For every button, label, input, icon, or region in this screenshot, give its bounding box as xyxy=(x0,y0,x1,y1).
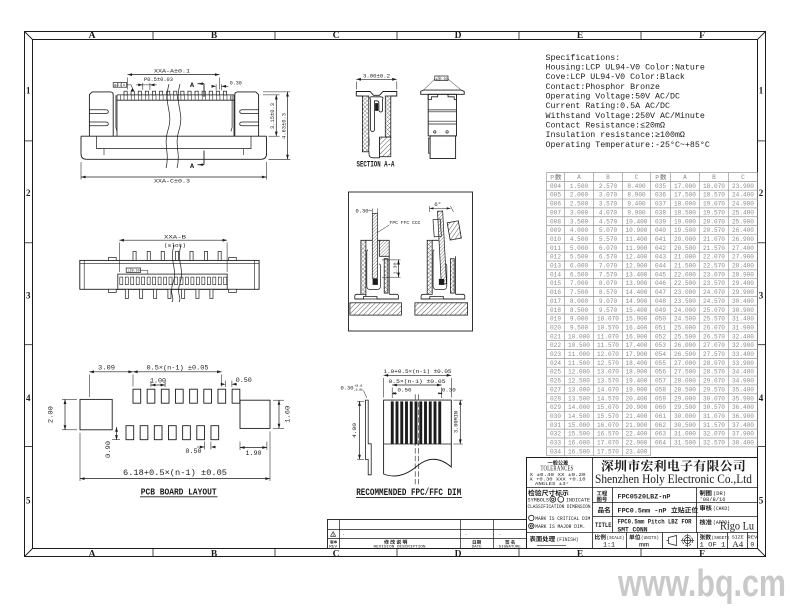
svg-text:(CHKD): (CHKD) xyxy=(713,506,730,512)
svg-text:053: 053 xyxy=(655,342,666,349)
svg-text:12.900: 12.900 xyxy=(626,263,648,270)
svg-text:(FINISH): (FINISH) xyxy=(557,537,579,543)
svg-text:15.070: 15.070 xyxy=(597,404,619,411)
svg-text:(slot): (slot) xyxy=(164,242,186,249)
svg-text:Current Rating:0.5A AC/DC: Current Rating:0.5A AC/DC xyxy=(546,101,670,111)
svg-text:28.570: 28.570 xyxy=(703,369,725,376)
svg-text:REVISION DESCRIPTION: REVISION DESCRIPTION xyxy=(374,545,426,549)
svg-text:021: 021 xyxy=(550,333,561,340)
svg-text:013: 013 xyxy=(550,263,561,270)
svg-text:22.900: 22.900 xyxy=(626,440,648,447)
svg-text:26.070: 26.070 xyxy=(703,324,725,331)
svg-text:0.50: 0.50 xyxy=(132,270,140,274)
svg-text:7.500: 7.500 xyxy=(570,289,589,296)
svg-text:Housing:LCP UL94-V0 Color:Natu: Housing:LCP UL94-V0 Color:Nature xyxy=(546,63,705,73)
svg-text:14.400: 14.400 xyxy=(626,289,648,296)
svg-text:20.500: 20.500 xyxy=(674,245,696,252)
svg-text:006: 006 xyxy=(550,201,561,208)
svg-text:1.30: 1.30 xyxy=(392,262,398,274)
svg-text:C: C xyxy=(635,174,639,181)
svg-text:28.900: 28.900 xyxy=(732,271,754,278)
svg-text:005: 005 xyxy=(550,192,561,199)
svg-text:20.570: 20.570 xyxy=(703,227,725,234)
svg-text:12.500: 12.500 xyxy=(568,378,590,385)
svg-text:DATE: DATE xyxy=(472,545,482,549)
svg-text:16.000: 16.000 xyxy=(568,440,590,447)
svg-text:3: 3 xyxy=(759,291,764,301)
svg-text:6.500: 6.500 xyxy=(570,271,589,278)
svg-text:36.400: 36.400 xyxy=(732,404,754,411)
svg-text:1.0+0.5×(n-1) ±0.05: 1.0+0.5×(n-1) ±0.05 xyxy=(384,368,453,375)
svg-text:E: E xyxy=(577,549,583,559)
svg-text:045: 045 xyxy=(655,271,666,278)
svg-text:9.000: 9.000 xyxy=(570,316,589,323)
svg-text:16.070: 16.070 xyxy=(597,422,619,429)
svg-text:21.900: 21.900 xyxy=(626,422,648,429)
svg-text:039: 039 xyxy=(655,218,666,225)
svg-text:056: 056 xyxy=(655,369,666,376)
svg-text:A: A xyxy=(89,31,96,41)
svg-text:32.070: 32.070 xyxy=(703,431,725,438)
svg-text:A: A xyxy=(89,549,96,559)
svg-text:14.070: 14.070 xyxy=(597,386,619,393)
svg-text:030: 030 xyxy=(550,413,561,420)
svg-text:XXA-A±0.1: XXA-A±0.1 xyxy=(154,67,191,74)
svg-text:4.63±0.3: 4.63±0.3 xyxy=(281,113,287,139)
svg-text:3: 3 xyxy=(26,291,31,301)
svg-text:062: 062 xyxy=(655,422,666,429)
svg-text:19.570: 19.570 xyxy=(703,209,725,216)
svg-text:24.570: 24.570 xyxy=(703,298,725,305)
svg-text:12.400: 12.400 xyxy=(626,254,648,261)
svg-text:26.900: 26.900 xyxy=(732,236,754,243)
svg-text:29.000: 29.000 xyxy=(674,395,696,402)
svg-text:30.400: 30.400 xyxy=(732,298,754,305)
svg-text:10.500: 10.500 xyxy=(568,342,590,349)
svg-text:7.570: 7.570 xyxy=(599,271,618,278)
svg-text:17.070: 17.070 xyxy=(597,440,619,447)
svg-text:10.000: 10.000 xyxy=(568,333,590,340)
svg-text:032: 032 xyxy=(550,431,561,438)
svg-text:B: B xyxy=(712,174,716,181)
svg-text:30.500: 30.500 xyxy=(674,422,696,429)
svg-text:25.500: 25.500 xyxy=(674,333,696,340)
svg-text:15.400: 15.400 xyxy=(626,307,648,314)
svg-text:4: 4 xyxy=(26,393,31,403)
svg-text:29.500: 29.500 xyxy=(674,404,696,411)
svg-text:5.500: 5.500 xyxy=(570,254,589,261)
svg-text:31.500: 31.500 xyxy=(674,440,696,447)
svg-text:FPC0.5mm Pitch LBZ FOR: FPC0.5mm Pitch LBZ FOR xyxy=(618,519,692,526)
svg-text:30.570: 30.570 xyxy=(703,404,725,411)
svg-text:25.070: 25.070 xyxy=(703,307,725,314)
svg-text:13.570: 13.570 xyxy=(597,378,619,385)
svg-text:26.570: 26.570 xyxy=(703,333,725,340)
svg-text:-: - xyxy=(342,533,345,538)
svg-text:22.500: 22.500 xyxy=(674,280,696,287)
svg-text:3.000: 3.000 xyxy=(570,209,589,216)
svg-text:2.500: 2.500 xyxy=(570,201,589,208)
svg-text:(UNITS): (UNITS) xyxy=(641,535,659,541)
svg-text:7.070: 7.070 xyxy=(599,263,618,270)
svg-text:31.900: 31.900 xyxy=(732,324,754,331)
svg-text:Contact Resistance:≤20mΩ: Contact Resistance:≤20mΩ xyxy=(546,121,666,131)
svg-text:19.900: 19.900 xyxy=(626,386,648,393)
svg-text:36.900: 36.900 xyxy=(732,413,754,420)
svg-text:8.900: 8.900 xyxy=(627,192,646,199)
svg-text:2: 2 xyxy=(759,188,764,198)
svg-text:mm: mm xyxy=(639,542,649,549)
svg-text:A: A xyxy=(577,174,581,181)
svg-text:11.500: 11.500 xyxy=(568,360,590,367)
svg-text:18.000: 18.000 xyxy=(674,201,696,208)
svg-text:038: 038 xyxy=(655,209,666,216)
svg-text:018: 018 xyxy=(550,307,561,314)
svg-text:11.070: 11.070 xyxy=(597,333,619,340)
svg-text:9.570: 9.570 xyxy=(599,307,618,314)
svg-text:20.400: 20.400 xyxy=(626,395,648,402)
svg-text:031: 031 xyxy=(550,422,561,429)
svg-text:31.000: 31.000 xyxy=(674,431,696,438)
svg-text:011: 011 xyxy=(550,245,561,252)
svg-text:Insulation resistance:≥100mΩ: Insulation resistance:≥100mΩ xyxy=(546,130,685,140)
svg-text:24.000: 24.000 xyxy=(674,307,696,314)
svg-text:11.570: 11.570 xyxy=(597,342,619,349)
svg-text:015: 015 xyxy=(550,280,561,287)
svg-text:Cove:LCP UL94-V0 Color:Black: Cove:LCP UL94-V0 Color:Black xyxy=(546,72,685,82)
svg-text:RECOMMENDED FPC/FFC DIM: RECOMMENDED FPC/FFC DIM xyxy=(356,487,461,499)
svg-text:041: 041 xyxy=(655,236,666,243)
svg-text:23.570: 23.570 xyxy=(703,280,725,287)
svg-text:16.570: 16.570 xyxy=(597,431,619,438)
svg-text:www.bq.cm: www.bq.cm xyxy=(617,563,786,605)
svg-text:008: 008 xyxy=(550,218,561,225)
svg-text:14.900: 14.900 xyxy=(626,298,648,305)
svg-text:8.400: 8.400 xyxy=(627,183,646,190)
svg-text:18.400: 18.400 xyxy=(626,360,648,367)
svg-text:22.400: 22.400 xyxy=(626,431,648,438)
svg-text:33.400: 33.400 xyxy=(732,351,754,358)
svg-text:0.5×(n-1) ±0.05: 0.5×(n-1) ±0.05 xyxy=(389,378,447,385)
svg-text:FPC FFC CCC: FPC FFC CCC xyxy=(390,220,421,226)
svg-text:14.570: 14.570 xyxy=(597,395,619,402)
svg-text:29.570: 29.570 xyxy=(703,386,725,393)
svg-text:31.070: 31.070 xyxy=(703,413,725,420)
svg-text:A: A xyxy=(123,83,125,87)
svg-text:20.000: 20.000 xyxy=(674,236,696,243)
svg-text:017: 017 xyxy=(550,298,561,305)
svg-text:064: 064 xyxy=(655,440,666,447)
svg-text:B: B xyxy=(606,174,610,181)
svg-text:Contact:Phosphor Bronze: Contact:Phosphor Bronze xyxy=(546,82,661,92)
svg-text:060: 060 xyxy=(655,404,666,411)
svg-text:31.400: 31.400 xyxy=(732,316,754,323)
svg-text:061: 061 xyxy=(655,413,666,420)
svg-text:(SCALE): (SCALE) xyxy=(607,535,625,541)
svg-text:0.50: 0.50 xyxy=(186,448,202,455)
svg-text:1.90: 1.90 xyxy=(246,450,262,457)
svg-text:11.000: 11.000 xyxy=(568,351,590,358)
svg-text:30.000: 30.000 xyxy=(674,413,696,420)
svg-text:34.400: 34.400 xyxy=(732,369,754,376)
svg-text:30.070: 30.070 xyxy=(703,395,725,402)
svg-text:13.500: 13.500 xyxy=(568,395,590,402)
svg-text:SYMBOLS: SYMBOLS xyxy=(528,497,550,503)
svg-text:29.400: 29.400 xyxy=(732,280,754,287)
svg-text:35.900: 35.900 xyxy=(732,395,754,402)
svg-text:6.000: 6.000 xyxy=(570,263,589,270)
svg-text:25.570: 25.570 xyxy=(703,316,725,323)
svg-text:Operating Temperature:-25°C~+8: Operating Temperature:-25°C~+85°C xyxy=(546,140,710,150)
svg-text:18.070: 18.070 xyxy=(703,183,725,190)
svg-text:18.570: 18.570 xyxy=(703,192,725,199)
svg-text:4.000: 4.000 xyxy=(570,227,589,234)
svg-text:19.000: 19.000 xyxy=(674,218,696,225)
svg-text:1: 1 xyxy=(759,86,764,96)
svg-text:007: 007 xyxy=(550,209,561,216)
svg-text:9.070: 9.070 xyxy=(599,298,618,305)
svg-text:1: 1 xyxy=(332,533,334,537)
svg-text:Rigo Lu: Rigo Lu xyxy=(720,519,754,533)
svg-text:31.570: 31.570 xyxy=(703,422,725,429)
svg-text:35.400: 35.400 xyxy=(732,386,754,393)
svg-text:9.500: 9.500 xyxy=(570,324,589,331)
svg-text:3.570: 3.570 xyxy=(599,201,618,208)
svg-text:SECTION A-A: SECTION A-A xyxy=(357,161,395,170)
svg-text:Operating Voltage:50V AC/DC: Operating Voltage:50V AC/DC xyxy=(546,92,680,102)
svg-text:⊥: ⊥ xyxy=(127,269,130,274)
svg-text:22.570: 22.570 xyxy=(703,263,725,270)
svg-text:37.900: 37.900 xyxy=(732,431,754,438)
svg-text:-0.05: -0.05 xyxy=(354,389,363,393)
svg-text:MARK IS MAJOR DIM.: MARK IS MAJOR DIM. xyxy=(535,524,585,530)
svg-text:033: 033 xyxy=(550,440,561,447)
svg-text:P: P xyxy=(550,174,554,181)
svg-text:004: 004 xyxy=(550,183,561,190)
svg-text:A4: A4 xyxy=(732,539,744,549)
svg-text:1 OF 1: 1 OF 1 xyxy=(700,542,726,549)
svg-text:22.000: 22.000 xyxy=(674,271,696,278)
svg-text:F: F xyxy=(699,549,705,559)
svg-text:27.900: 27.900 xyxy=(732,254,754,261)
svg-text:014: 014 xyxy=(550,271,561,278)
svg-text:REV: REV xyxy=(329,544,337,548)
svg-text:20.070: 20.070 xyxy=(703,218,725,225)
svg-text:050: 050 xyxy=(655,316,666,323)
svg-text:21.400: 21.400 xyxy=(626,413,648,420)
svg-text:⊕: ⊕ xyxy=(114,83,117,88)
svg-text:24.900: 24.900 xyxy=(732,201,754,208)
svg-text:28.000: 28.000 xyxy=(674,378,696,385)
svg-text:057: 057 xyxy=(655,378,666,385)
svg-text:012: 012 xyxy=(550,254,561,261)
svg-text:3.00±0.2: 3.00±0.2 xyxy=(363,74,390,80)
svg-text:4.500: 4.500 xyxy=(570,236,589,243)
svg-text:27.000: 27.000 xyxy=(674,360,696,367)
svg-text:C: C xyxy=(333,549,340,559)
svg-text:15.500: 15.500 xyxy=(568,431,590,438)
svg-text:0.50: 0.50 xyxy=(398,386,413,393)
svg-text:A: A xyxy=(683,174,687,181)
svg-text:1.500: 1.500 xyxy=(570,183,589,190)
svg-text:27.570: 27.570 xyxy=(703,351,725,358)
svg-text:P0.5±0.03: P0.5±0.03 xyxy=(144,77,173,83)
svg-text:8.070: 8.070 xyxy=(599,280,618,287)
svg-text:25.000: 25.000 xyxy=(674,324,696,331)
svg-text:3.15±0.3: 3.15±0.3 xyxy=(270,103,276,129)
svg-text:24.400: 24.400 xyxy=(732,192,754,199)
svg-text:XXA-B: XXA-B xyxy=(164,234,187,241)
svg-text:6°: 6° xyxy=(434,202,441,208)
svg-text:4.00: 4.00 xyxy=(351,422,358,438)
svg-text:30.900: 30.900 xyxy=(732,307,754,314)
svg-text:Specifications:: Specifications: xyxy=(546,53,621,63)
svg-text:2.000: 2.000 xyxy=(570,192,589,199)
svg-text:13.000: 13.000 xyxy=(568,386,590,393)
svg-text:B: B xyxy=(211,549,218,559)
svg-text:17.400: 17.400 xyxy=(626,342,648,349)
svg-text:1: 1 xyxy=(26,86,31,96)
svg-text:-: - xyxy=(465,533,468,538)
svg-text:29.070: 29.070 xyxy=(703,378,725,385)
svg-text:19.500: 19.500 xyxy=(674,227,696,234)
svg-text:11.900: 11.900 xyxy=(626,245,648,252)
svg-text:28.070: 28.070 xyxy=(703,360,725,367)
svg-text:32.900: 32.900 xyxy=(732,342,754,349)
svg-text:27.400: 27.400 xyxy=(732,245,754,252)
svg-text:15.570: 15.570 xyxy=(597,413,619,420)
svg-text:23.000: 23.000 xyxy=(674,289,696,296)
svg-text:009: 009 xyxy=(550,227,561,234)
svg-text:16.900: 16.900 xyxy=(626,333,648,340)
svg-text:049: 049 xyxy=(655,307,666,314)
svg-text:1:1: 1:1 xyxy=(603,542,615,549)
svg-text:6.18+0.5×(n-1) ±0.05: 6.18+0.5×(n-1) ±0.05 xyxy=(123,469,227,478)
svg-text:28.500: 28.500 xyxy=(674,386,696,393)
svg-text:32.400: 32.400 xyxy=(732,333,754,340)
svg-text:17.500: 17.500 xyxy=(674,192,696,199)
svg-text:19.070: 19.070 xyxy=(703,201,725,208)
svg-text:0.30: 0.30 xyxy=(440,78,448,82)
svg-text:9.400: 9.400 xyxy=(627,201,646,208)
svg-text:23.400: 23.400 xyxy=(626,448,648,455)
svg-text:4.070: 4.070 xyxy=(599,209,618,216)
svg-text:6.070: 6.070 xyxy=(599,245,618,252)
svg-text:11.400: 11.400 xyxy=(626,236,648,243)
svg-text:24.500: 24.500 xyxy=(674,316,696,323)
svg-text:15.900: 15.900 xyxy=(626,316,648,323)
svg-text:24.070: 24.070 xyxy=(703,289,725,296)
svg-text:23.500: 23.500 xyxy=(674,298,696,305)
svg-text:7.000: 7.000 xyxy=(570,280,589,287)
svg-text:C: C xyxy=(741,174,745,181)
svg-text:048: 048 xyxy=(655,298,666,305)
svg-text:1.00: 1.00 xyxy=(150,378,166,385)
svg-text:5.570: 5.570 xyxy=(599,236,618,243)
svg-text:5: 5 xyxy=(26,496,31,506)
svg-text:8.570: 8.570 xyxy=(599,289,618,296)
svg-text:8.000: 8.000 xyxy=(570,298,589,305)
svg-text:TITLE: TITLE xyxy=(595,522,612,529)
svg-text:4: 4 xyxy=(759,393,764,403)
svg-text:26.400: 26.400 xyxy=(732,227,754,234)
svg-text:17.900: 17.900 xyxy=(626,351,648,358)
svg-text:0.90: 0.90 xyxy=(105,441,112,458)
svg-text:029: 029 xyxy=(550,404,561,411)
svg-text:FPC0.5mm -nP: FPC0.5mm -nP xyxy=(618,508,667,516)
svg-text:12.000: 12.000 xyxy=(568,369,590,376)
svg-text:CLASSIFICATION DIMENSION: CLASSIFICATION DIMENSION xyxy=(528,504,591,510)
svg-text:SMT CONN: SMT CONN xyxy=(618,526,648,533)
svg-text:INDICATE: INDICATE xyxy=(566,497,590,503)
svg-text:2: 2 xyxy=(26,188,31,198)
svg-text:051: 051 xyxy=(655,324,666,331)
svg-text:023: 023 xyxy=(550,351,561,358)
svg-text:13.900: 13.900 xyxy=(626,280,648,287)
svg-text:0.30: 0.30 xyxy=(230,80,242,86)
svg-text:052: 052 xyxy=(655,333,666,340)
svg-text:23.900: 23.900 xyxy=(732,183,754,190)
svg-text:D: D xyxy=(455,549,462,559)
svg-text:21.500: 21.500 xyxy=(674,263,696,270)
svg-text:13.400: 13.400 xyxy=(626,271,648,278)
svg-text:022: 022 xyxy=(550,342,561,349)
svg-text:20.900: 20.900 xyxy=(626,404,648,411)
svg-text:FPC0520LBZ-nP: FPC0520LBZ-nP xyxy=(618,493,671,501)
svg-text:18.500: 18.500 xyxy=(674,209,696,216)
svg-text:044: 044 xyxy=(655,263,666,270)
svg-text:∠: ∠ xyxy=(435,77,438,82)
svg-text:TOLERANCES: TOLERANCES xyxy=(541,466,574,473)
svg-text:025: 025 xyxy=(550,369,561,376)
svg-text:0: 0 xyxy=(750,542,754,549)
svg-text:ANGLES ±3°: ANGLES ±3° xyxy=(535,482,569,487)
svg-text:16.400: 16.400 xyxy=(626,324,648,331)
svg-text:3.09: 3.09 xyxy=(98,364,115,371)
svg-text:26.000: 26.000 xyxy=(674,342,696,349)
svg-text:027: 027 xyxy=(550,386,561,393)
svg-text:4.570: 4.570 xyxy=(599,218,618,225)
svg-text:D: D xyxy=(455,31,462,41)
svg-text:10.900: 10.900 xyxy=(626,227,648,234)
svg-text:SIGNATURE: SIGNATURE xyxy=(499,545,521,549)
svg-text:3.500: 3.500 xyxy=(570,218,589,225)
svg-text:17.000: 17.000 xyxy=(674,183,696,190)
svg-text:2.00: 2.00 xyxy=(48,406,55,423)
svg-text:3.00MIN: 3.00MIN xyxy=(454,411,460,433)
svg-text:10.400: 10.400 xyxy=(626,218,648,225)
svg-text:059: 059 xyxy=(655,395,666,402)
svg-text:054: 054 xyxy=(655,351,666,358)
svg-text:37.400: 37.400 xyxy=(732,422,754,429)
svg-text:0.5×(n-1) ±0.05: 0.5×(n-1) ±0.05 xyxy=(147,364,209,371)
svg-text:32.570: 32.570 xyxy=(703,440,725,447)
svg-text:042: 042 xyxy=(655,245,666,252)
svg-text:020: 020 xyxy=(550,324,561,331)
svg-text:034: 034 xyxy=(550,448,561,455)
svg-text:P: P xyxy=(655,174,659,181)
svg-text:MARK IS CRITICAL DIM: MARK IS CRITICAL DIM xyxy=(535,516,590,522)
svg-text:17.570: 17.570 xyxy=(597,448,619,455)
svg-text:18.900: 18.900 xyxy=(626,369,648,376)
svg-text:024: 024 xyxy=(550,360,561,367)
svg-text:-: - xyxy=(499,533,502,538)
svg-text:16.500: 16.500 xyxy=(568,448,590,455)
svg-text:010: 010 xyxy=(550,236,561,243)
svg-text:E: E xyxy=(577,31,583,41)
svg-text:B: B xyxy=(211,31,218,41)
svg-text:9.900: 9.900 xyxy=(627,209,646,216)
